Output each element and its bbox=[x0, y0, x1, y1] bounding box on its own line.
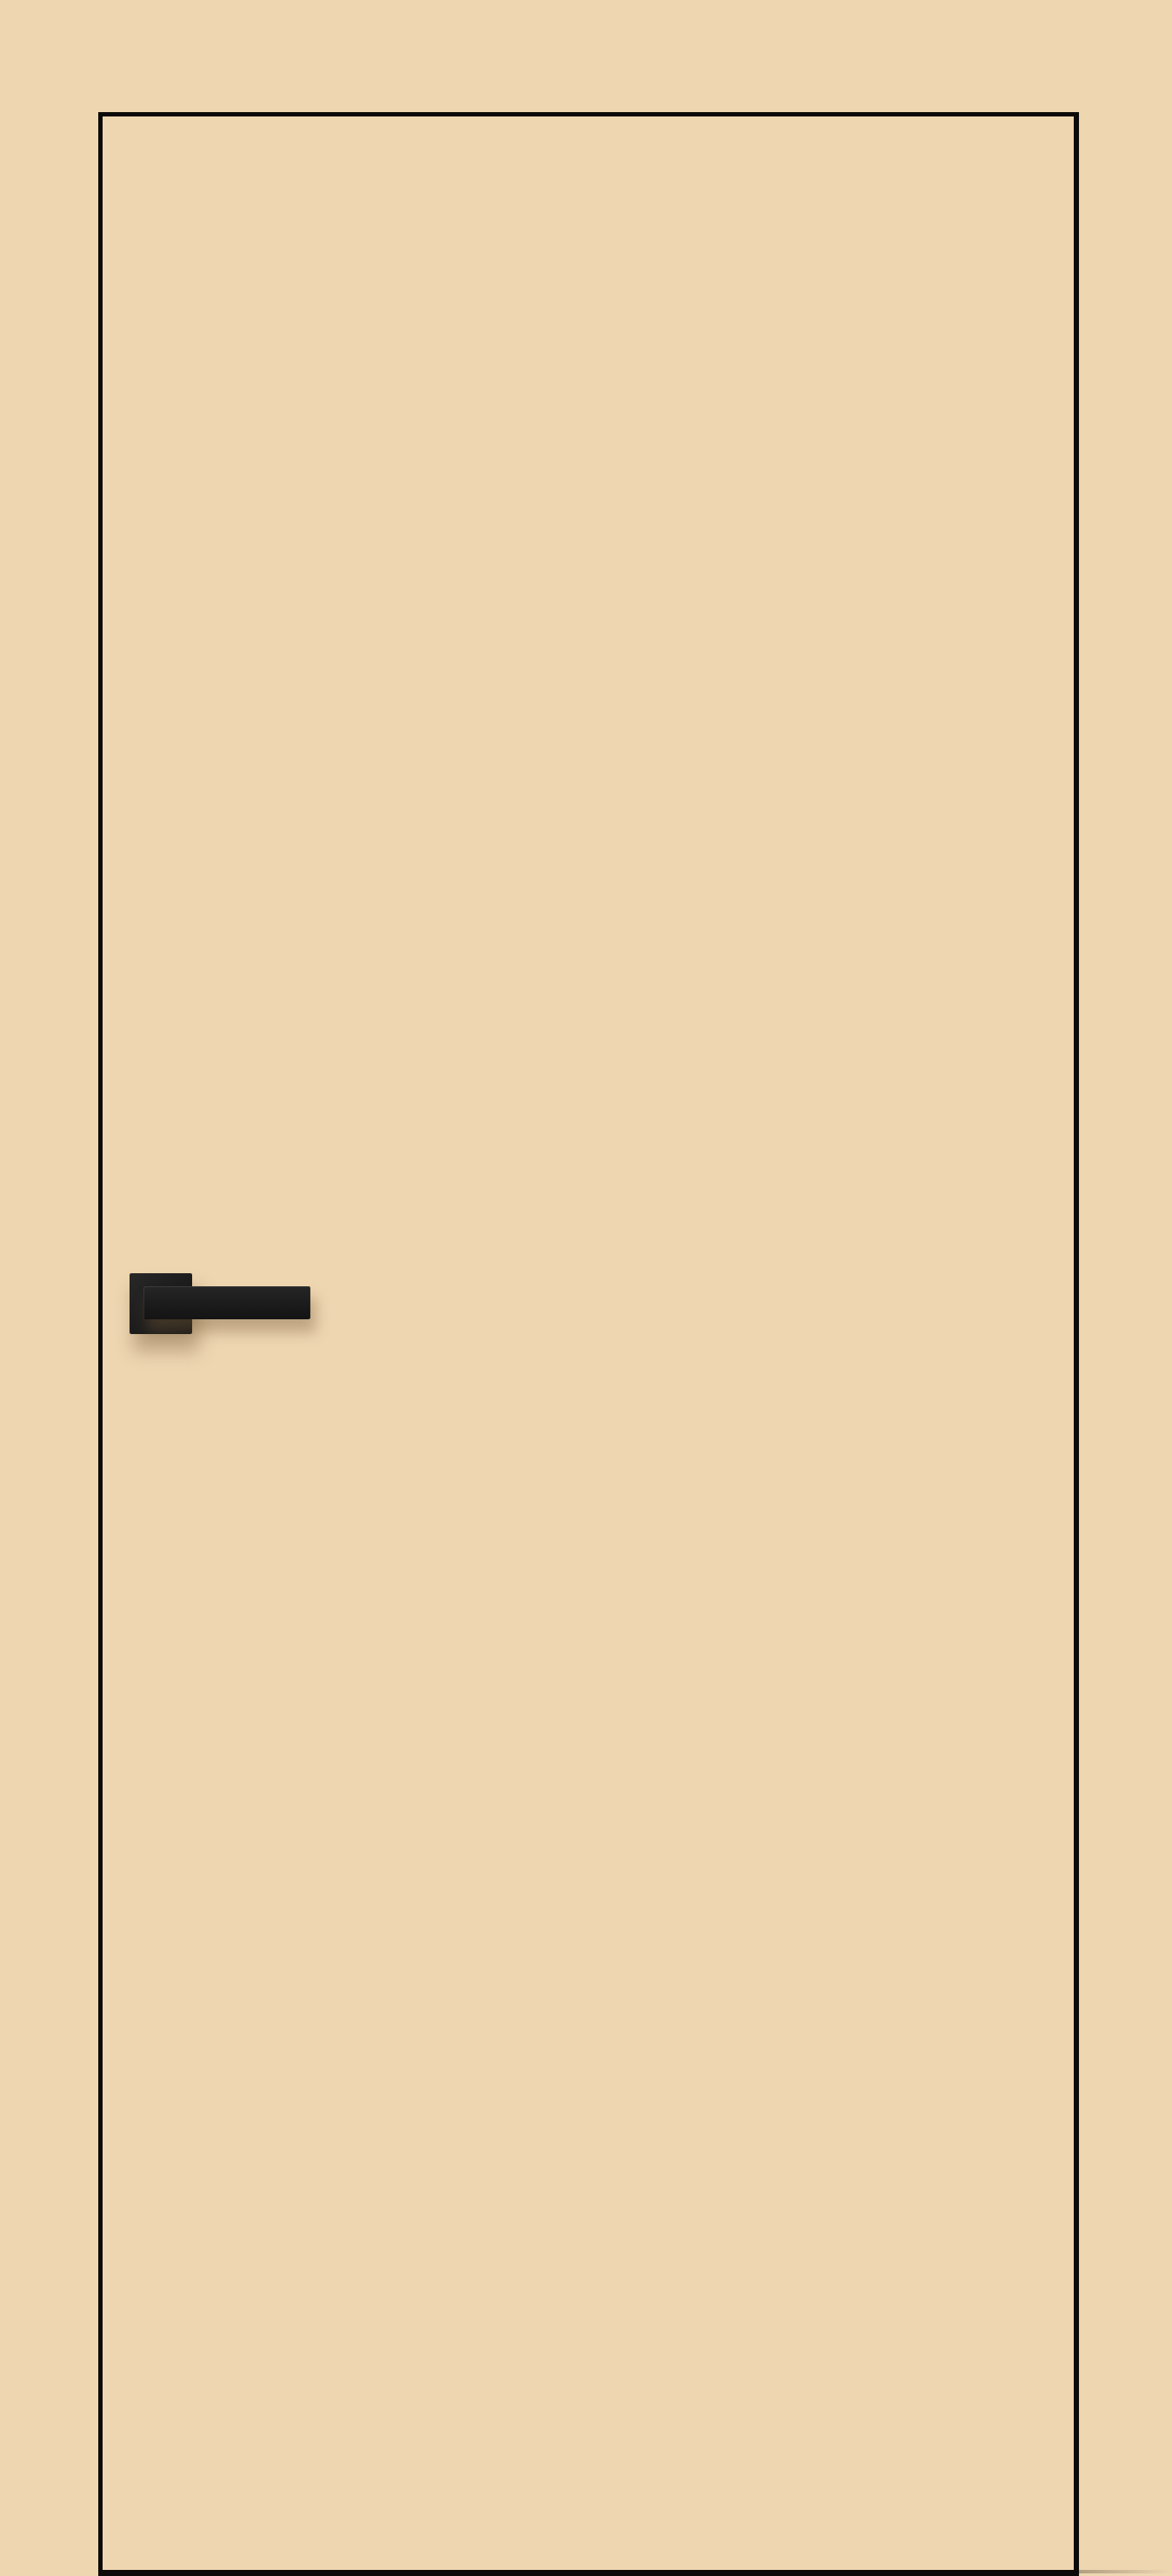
door-panel bbox=[98, 112, 1079, 2576]
door-handle-lever bbox=[143, 1286, 310, 1319]
floor-shadow-line bbox=[1079, 2570, 1172, 2573]
scene bbox=[0, 0, 1172, 2576]
